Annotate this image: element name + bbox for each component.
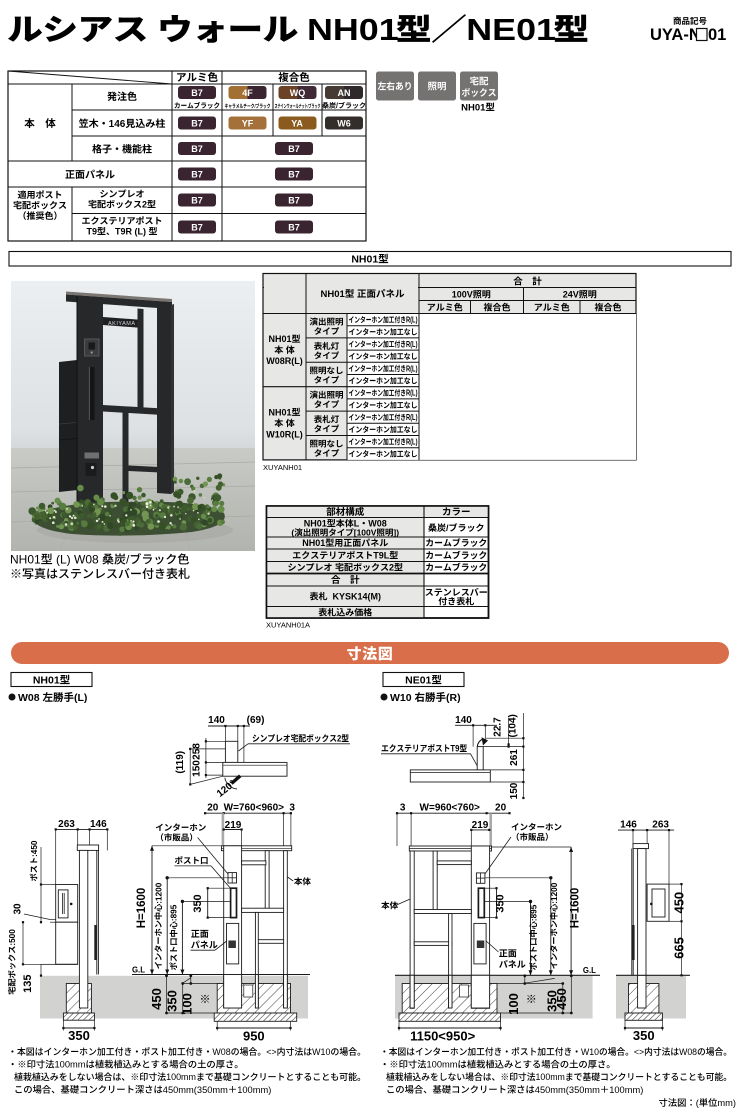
svg-text:(L): (L) [135, 227, 147, 237]
svg-text:W08: W08 [18, 692, 40, 704]
svg-text:KYSK14(M): KYSK14(M) [333, 592, 382, 602]
svg-text:3: 3 [400, 802, 406, 813]
svg-text:G.L: G.L [132, 965, 145, 974]
svg-text:W08: W08 [679, 1047, 697, 1057]
svg-text:NH01: NH01 [269, 334, 292, 344]
svg-text:]): ]) [393, 528, 399, 538]
svg-text:T9: T9 [450, 744, 459, 754]
svg-text:30: 30 [13, 903, 24, 915]
svg-text:/: / [336, 103, 338, 110]
svg-text:H=1600: H=1600 [569, 888, 581, 929]
svg-text:950: 950 [243, 1029, 265, 1044]
svg-text:AKIYAMA: AKIYAMA [108, 321, 136, 327]
svg-text:W08: W08 [212, 1047, 230, 1057]
svg-text:261: 261 [509, 749, 520, 766]
svg-text:XUYANH01A: XUYANH01A [266, 621, 310, 630]
svg-text:H=1600: H=1600 [136, 888, 148, 929]
svg-text:146: 146 [620, 820, 637, 831]
svg-text:2: 2 [389, 563, 394, 573]
svg-text:20: 20 [207, 802, 219, 813]
svg-text:100mm): 100mm) [609, 1085, 643, 1095]
svg-text:(L): (L) [74, 692, 87, 704]
svg-text:T9: T9 [87, 227, 98, 237]
svg-text:R(L): R(L) [406, 439, 417, 447]
svg-text:146: 146 [109, 119, 126, 130]
svg-text:NH01: NH01 [269, 407, 292, 417]
svg-text:(L): (L) [56, 553, 71, 567]
svg-text:350: 350 [192, 894, 204, 912]
svg-text:450mm(350mm: 450mm(350mm [163, 1085, 228, 1095]
svg-text:B7: B7 [191, 88, 203, 98]
svg-text:350: 350 [68, 1028, 90, 1043]
svg-text:665: 665 [672, 937, 687, 959]
svg-text:W08R(L): W08R(L) [266, 356, 303, 366]
svg-text:B7: B7 [191, 144, 203, 154]
svg-text:W10R(L): W10R(L) [266, 429, 303, 439]
svg-text:W=760<960>: W=760<960> [224, 802, 284, 813]
svg-text:4F: 4F [242, 88, 253, 98]
svg-text:NH01: NH01 [302, 538, 325, 548]
svg-text:<>: <> [634, 1047, 644, 1057]
svg-text:W6: W6 [337, 119, 351, 129]
svg-text:WQ: WQ [290, 88, 306, 98]
svg-text:XUYANH01: XUYANH01 [263, 463, 302, 472]
svg-text:150: 150 [509, 782, 520, 799]
svg-text::895: :895 [529, 904, 538, 921]
svg-text:AN: AN [338, 88, 351, 98]
svg-text:140: 140 [208, 715, 225, 726]
svg-text:B7: B7 [288, 196, 300, 206]
svg-text:258: 258 [192, 743, 203, 760]
svg-text:140: 140 [455, 715, 472, 726]
svg-text:219: 219 [472, 820, 489, 831]
svg-text:146: 146 [90, 819, 107, 830]
svg-text:NH01: NH01 [33, 675, 60, 687]
svg-text:NH01: NH01 [307, 14, 399, 48]
svg-text:G.L: G.L [583, 966, 596, 975]
svg-text:B7: B7 [191, 223, 203, 233]
svg-text:450: 450 [149, 988, 164, 1010]
svg-text:263: 263 [652, 820, 669, 831]
svg-text:100mm: 100mm [536, 1072, 565, 1082]
svg-text:YF: YF [242, 119, 254, 129]
svg-text:100: 100 [506, 993, 521, 1015]
svg-text:W=960<760>: W=960<760> [420, 802, 480, 813]
svg-text:W08: W08 [74, 553, 99, 567]
svg-text:100: 100 [179, 993, 194, 1015]
svg-text:NH01: NH01 [321, 289, 346, 300]
svg-text:1150<950>: 1150<950> [410, 1029, 475, 1044]
svg-text:UYA-N: UYA-N [650, 26, 701, 44]
svg-text::895: :895 [170, 904, 179, 921]
svg-text:01: 01 [708, 26, 726, 44]
svg-text:150: 150 [192, 760, 203, 777]
svg-text:W10: W10 [312, 1047, 330, 1057]
svg-text:B7: B7 [288, 223, 300, 233]
svg-text:T9L: T9L [373, 551, 390, 561]
svg-text:(119): (119) [175, 751, 186, 774]
svg-text:135: 135 [22, 975, 34, 993]
svg-text:<>: <> [266, 1047, 276, 1057]
svg-text:NH01: NH01 [461, 103, 486, 114]
svg-text::450: :450 [30, 840, 39, 857]
svg-text:2: 2 [337, 734, 342, 744]
svg-text:350: 350 [494, 894, 506, 912]
svg-text:100mm: 100mm [166, 1072, 196, 1082]
svg-text:B7: B7 [288, 144, 300, 154]
svg-text:219: 219 [225, 820, 242, 831]
svg-text:NE01: NE01 [466, 14, 556, 48]
svg-text:(R): (R) [446, 692, 461, 704]
svg-text:3: 3 [289, 802, 295, 813]
svg-text:[100V: [100V [354, 528, 377, 538]
svg-text:20: 20 [495, 802, 507, 813]
svg-text:450: 450 [554, 988, 569, 1010]
svg-text::1200: :1200 [154, 882, 163, 903]
svg-text::1200: :1200 [550, 882, 559, 903]
svg-text:L: L [354, 519, 360, 529]
svg-text:350: 350 [633, 1028, 655, 1043]
svg-text:NH01: NH01 [304, 519, 327, 529]
svg-text:263: 263 [58, 819, 75, 830]
svg-text:24V: 24V [563, 290, 579, 300]
svg-text:NH01: NH01 [10, 553, 41, 567]
svg-text:100V: 100V [452, 290, 473, 300]
svg-text:NE01: NE01 [405, 675, 431, 687]
svg-text:R(L): R(L) [406, 390, 417, 398]
svg-text:B7: B7 [191, 196, 203, 206]
svg-text:R(L): R(L) [406, 317, 417, 325]
svg-text::500: :500 [8, 929, 17, 946]
svg-text:R(L): R(L) [406, 341, 417, 349]
svg-text:100mm): 100mm) [237, 1085, 271, 1095]
svg-text:2: 2 [142, 200, 147, 210]
svg-text:NH01: NH01 [351, 254, 378, 266]
svg-text:(: ( [291, 528, 294, 538]
svg-text:W10: W10 [390, 692, 412, 704]
svg-text:W08: W08 [368, 519, 387, 529]
svg-text:450mm(350mm: 450mm(350mm [535, 1085, 600, 1095]
svg-text:W10: W10 [581, 1047, 599, 1057]
svg-text:B7: B7 [191, 170, 203, 180]
svg-text:T9R: T9R [115, 227, 133, 237]
svg-text:22.7: 22.7 [493, 717, 504, 737]
svg-text:100mm: 100mm [427, 1060, 458, 1070]
svg-text:R(L): R(L) [406, 414, 417, 422]
svg-text:B7: B7 [191, 119, 203, 129]
svg-text:(69): (69) [247, 715, 265, 726]
svg-text:B7: B7 [288, 170, 300, 180]
svg-text:R(L): R(L) [406, 366, 417, 374]
svg-text:450: 450 [672, 892, 687, 914]
svg-text:YA: YA [291, 119, 303, 129]
svg-text:(104): (104) [508, 714, 519, 737]
svg-text:mm): mm) [717, 1098, 736, 1108]
svg-text:100mm: 100mm [55, 1060, 86, 1070]
